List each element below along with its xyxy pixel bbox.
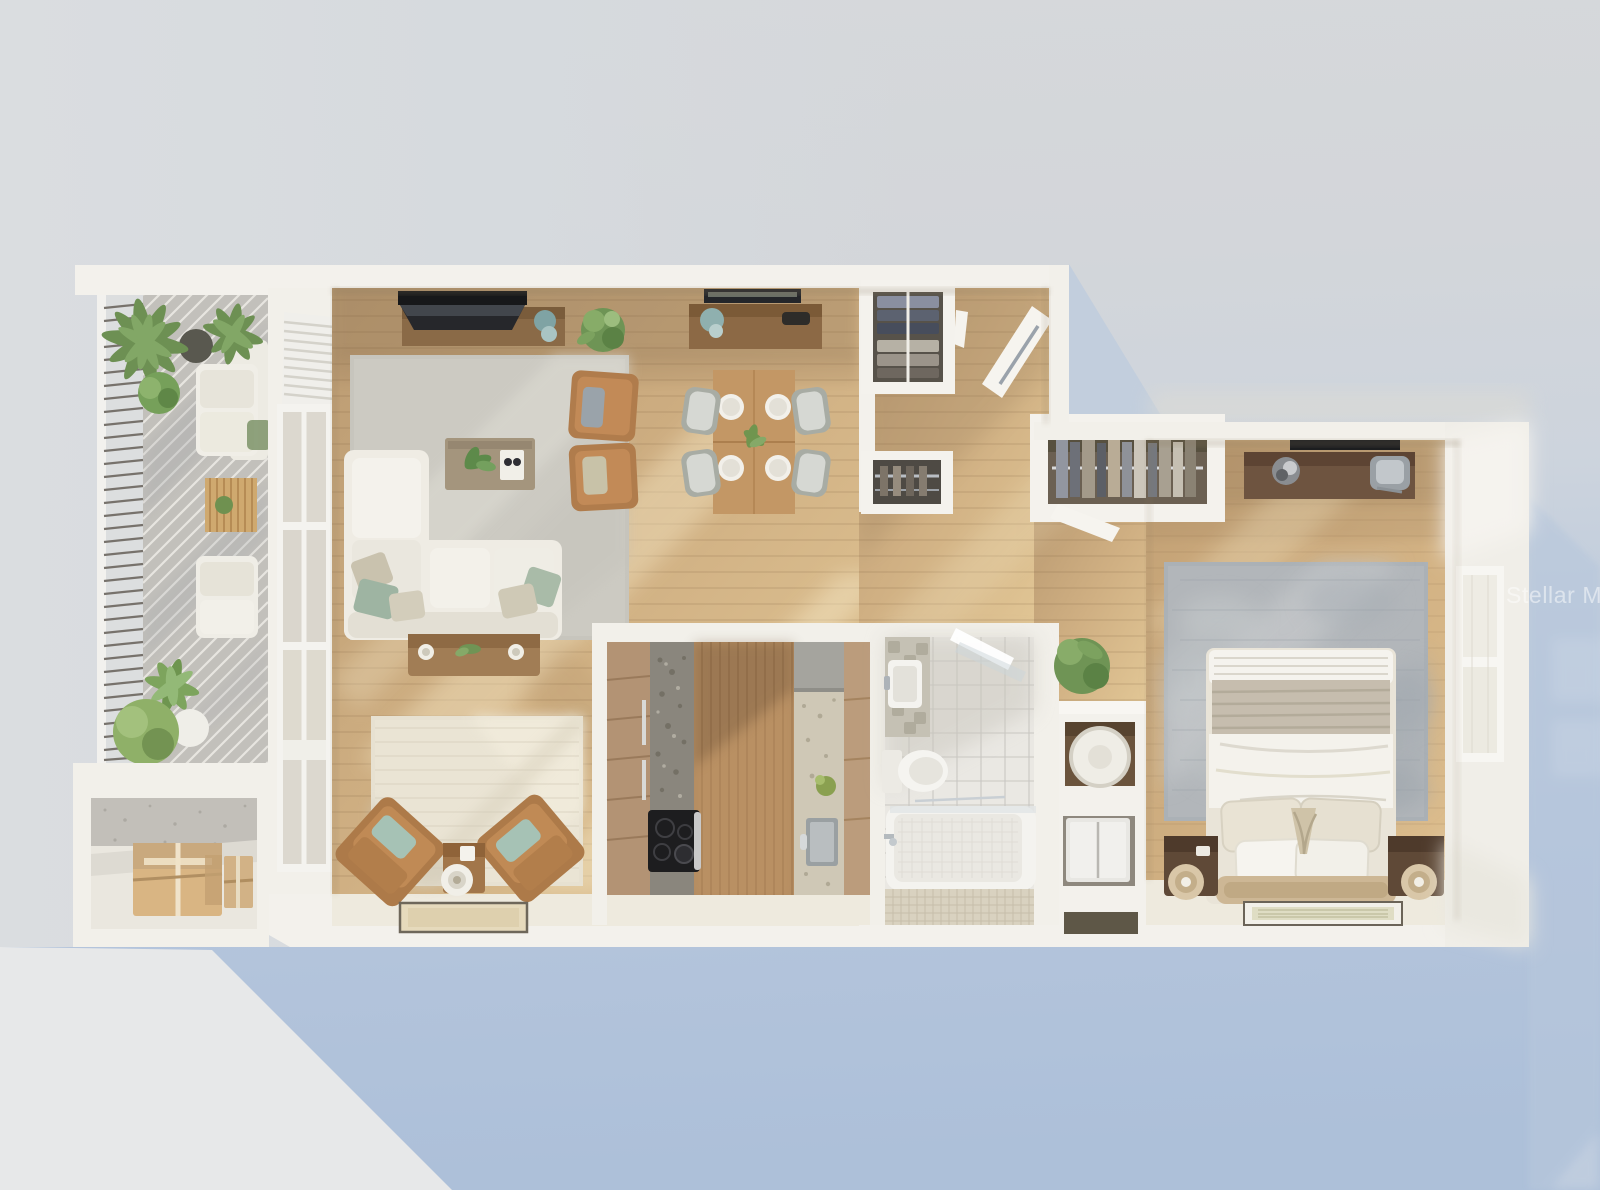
svg-text:Stellar MLS: Stellar MLS: [1506, 582, 1600, 608]
